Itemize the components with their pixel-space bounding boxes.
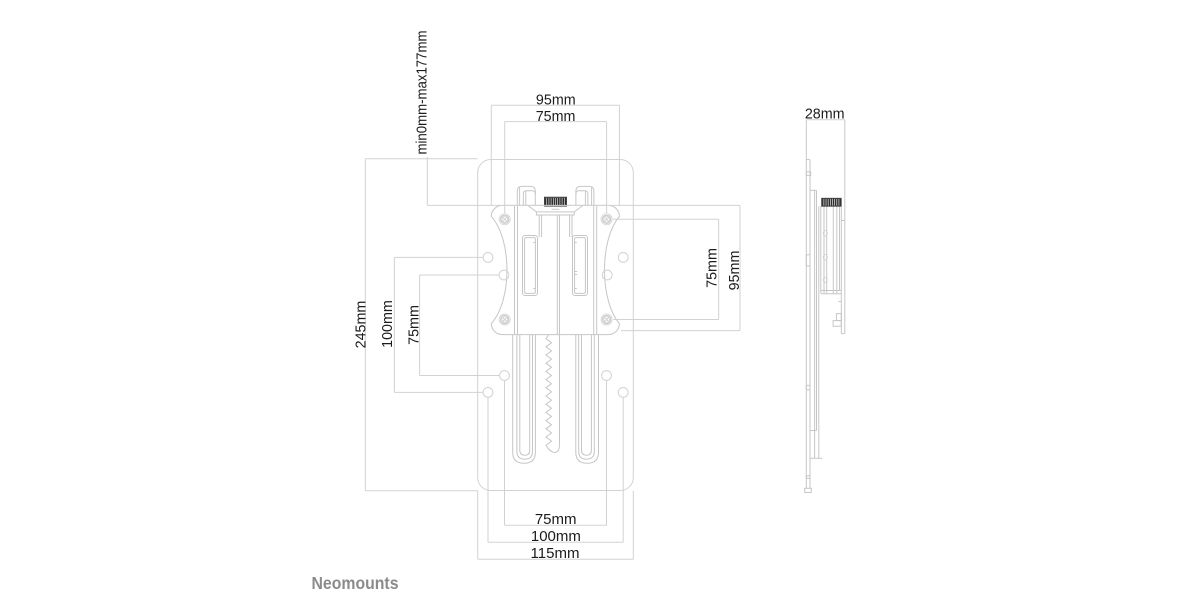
svg-text:75mm: 75mm [535,511,577,528]
svg-text:75mm: 75mm [536,109,576,125]
svg-text:100mm: 100mm [531,528,581,545]
svg-text:75mm: 75mm [705,248,721,288]
svg-text:Neomounts: Neomounts [312,573,399,593]
svg-text:min0mm-max177mm: min0mm-max177mm [414,31,430,155]
svg-text:95mm: 95mm [536,92,576,108]
svg-text:115mm: 115mm [531,545,580,562]
svg-text:245mm: 245mm [354,301,370,349]
svg-text:28mm: 28mm [805,107,845,123]
svg-text:95mm: 95mm [727,251,743,291]
svg-text:75mm: 75mm [406,305,422,345]
svg-text:100mm: 100mm [380,300,396,348]
